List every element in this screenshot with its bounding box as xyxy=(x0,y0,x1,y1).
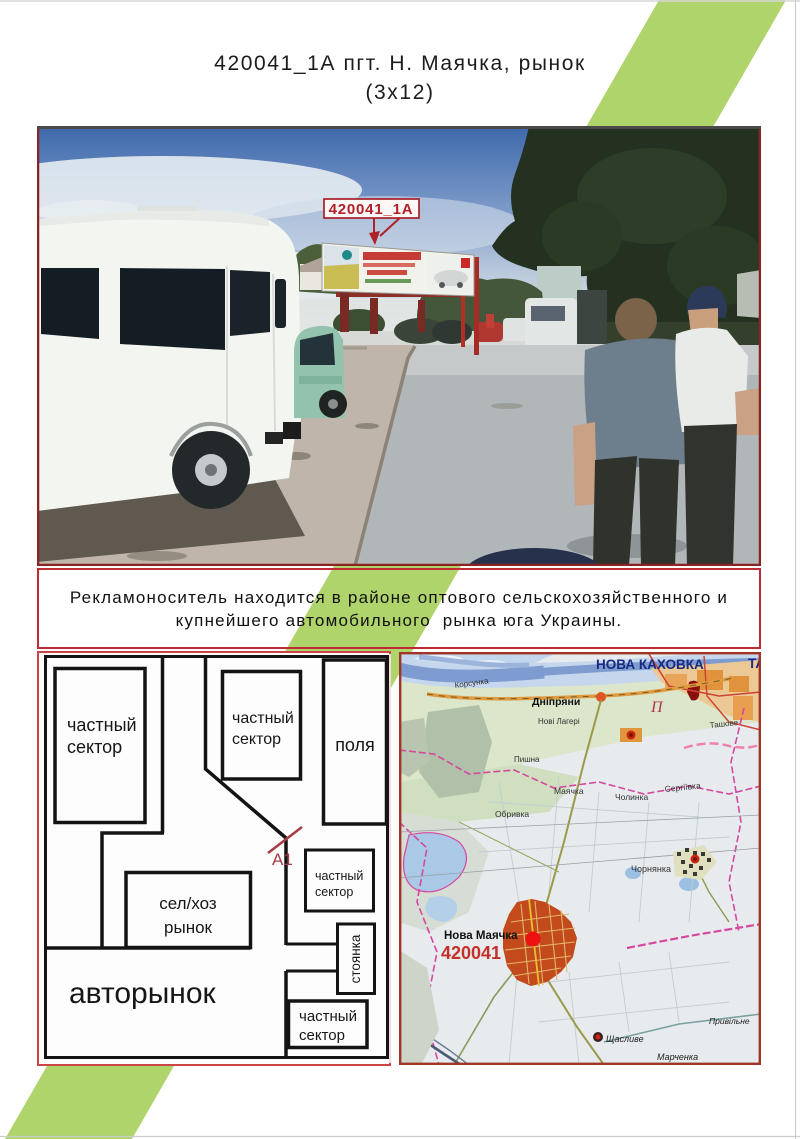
svg-text:частный: частный xyxy=(232,710,294,727)
svg-text:НОВА КАХОВКА: НОВА КАХОВКА xyxy=(596,657,704,672)
svg-text:П: П xyxy=(650,699,664,716)
svg-text:рынок: рынок xyxy=(164,918,213,937)
svg-text:поля: поля xyxy=(335,735,375,755)
svg-text:Нові Лагері: Нові Лагері xyxy=(538,717,580,726)
svg-text:Чолинка: Чолинка xyxy=(615,792,649,802)
svg-text:частный: частный xyxy=(299,1008,357,1025)
svg-text:частный: частный xyxy=(315,869,363,883)
svg-text:А1: А1 xyxy=(272,850,293,869)
svg-text:Обривка: Обривка xyxy=(495,809,529,819)
svg-text:сектор: сектор xyxy=(232,731,281,748)
svg-text:Дніпряни: Дніпряни xyxy=(532,696,580,708)
svg-text:авторынок: авторынок xyxy=(69,977,217,1010)
svg-text:Пишна: Пишна xyxy=(514,755,540,764)
svg-text:Нова Маячка: Нова Маячка xyxy=(444,930,518,942)
svg-text:сектор: сектор xyxy=(315,885,353,899)
svg-text:Марченка: Марченка xyxy=(657,1052,698,1062)
svg-text:Маячка: Маячка xyxy=(554,786,584,796)
svg-text:стоянка: стоянка xyxy=(348,934,363,983)
svg-text:420041: 420041 xyxy=(441,943,501,963)
svg-text:Щасливе: Щасливе xyxy=(606,1034,644,1044)
svg-text:сектор: сектор xyxy=(299,1027,345,1044)
svg-text:сектор: сектор xyxy=(67,737,122,757)
svg-text:420041_1A: 420041_1A xyxy=(329,201,414,218)
svg-text:Привільне: Привільне xyxy=(709,1016,750,1026)
svg-text:сел/хоз: сел/хоз xyxy=(159,894,217,913)
svg-text:частный: частный xyxy=(67,715,137,735)
svg-text:Чорнянка: Чорнянка xyxy=(631,864,671,874)
